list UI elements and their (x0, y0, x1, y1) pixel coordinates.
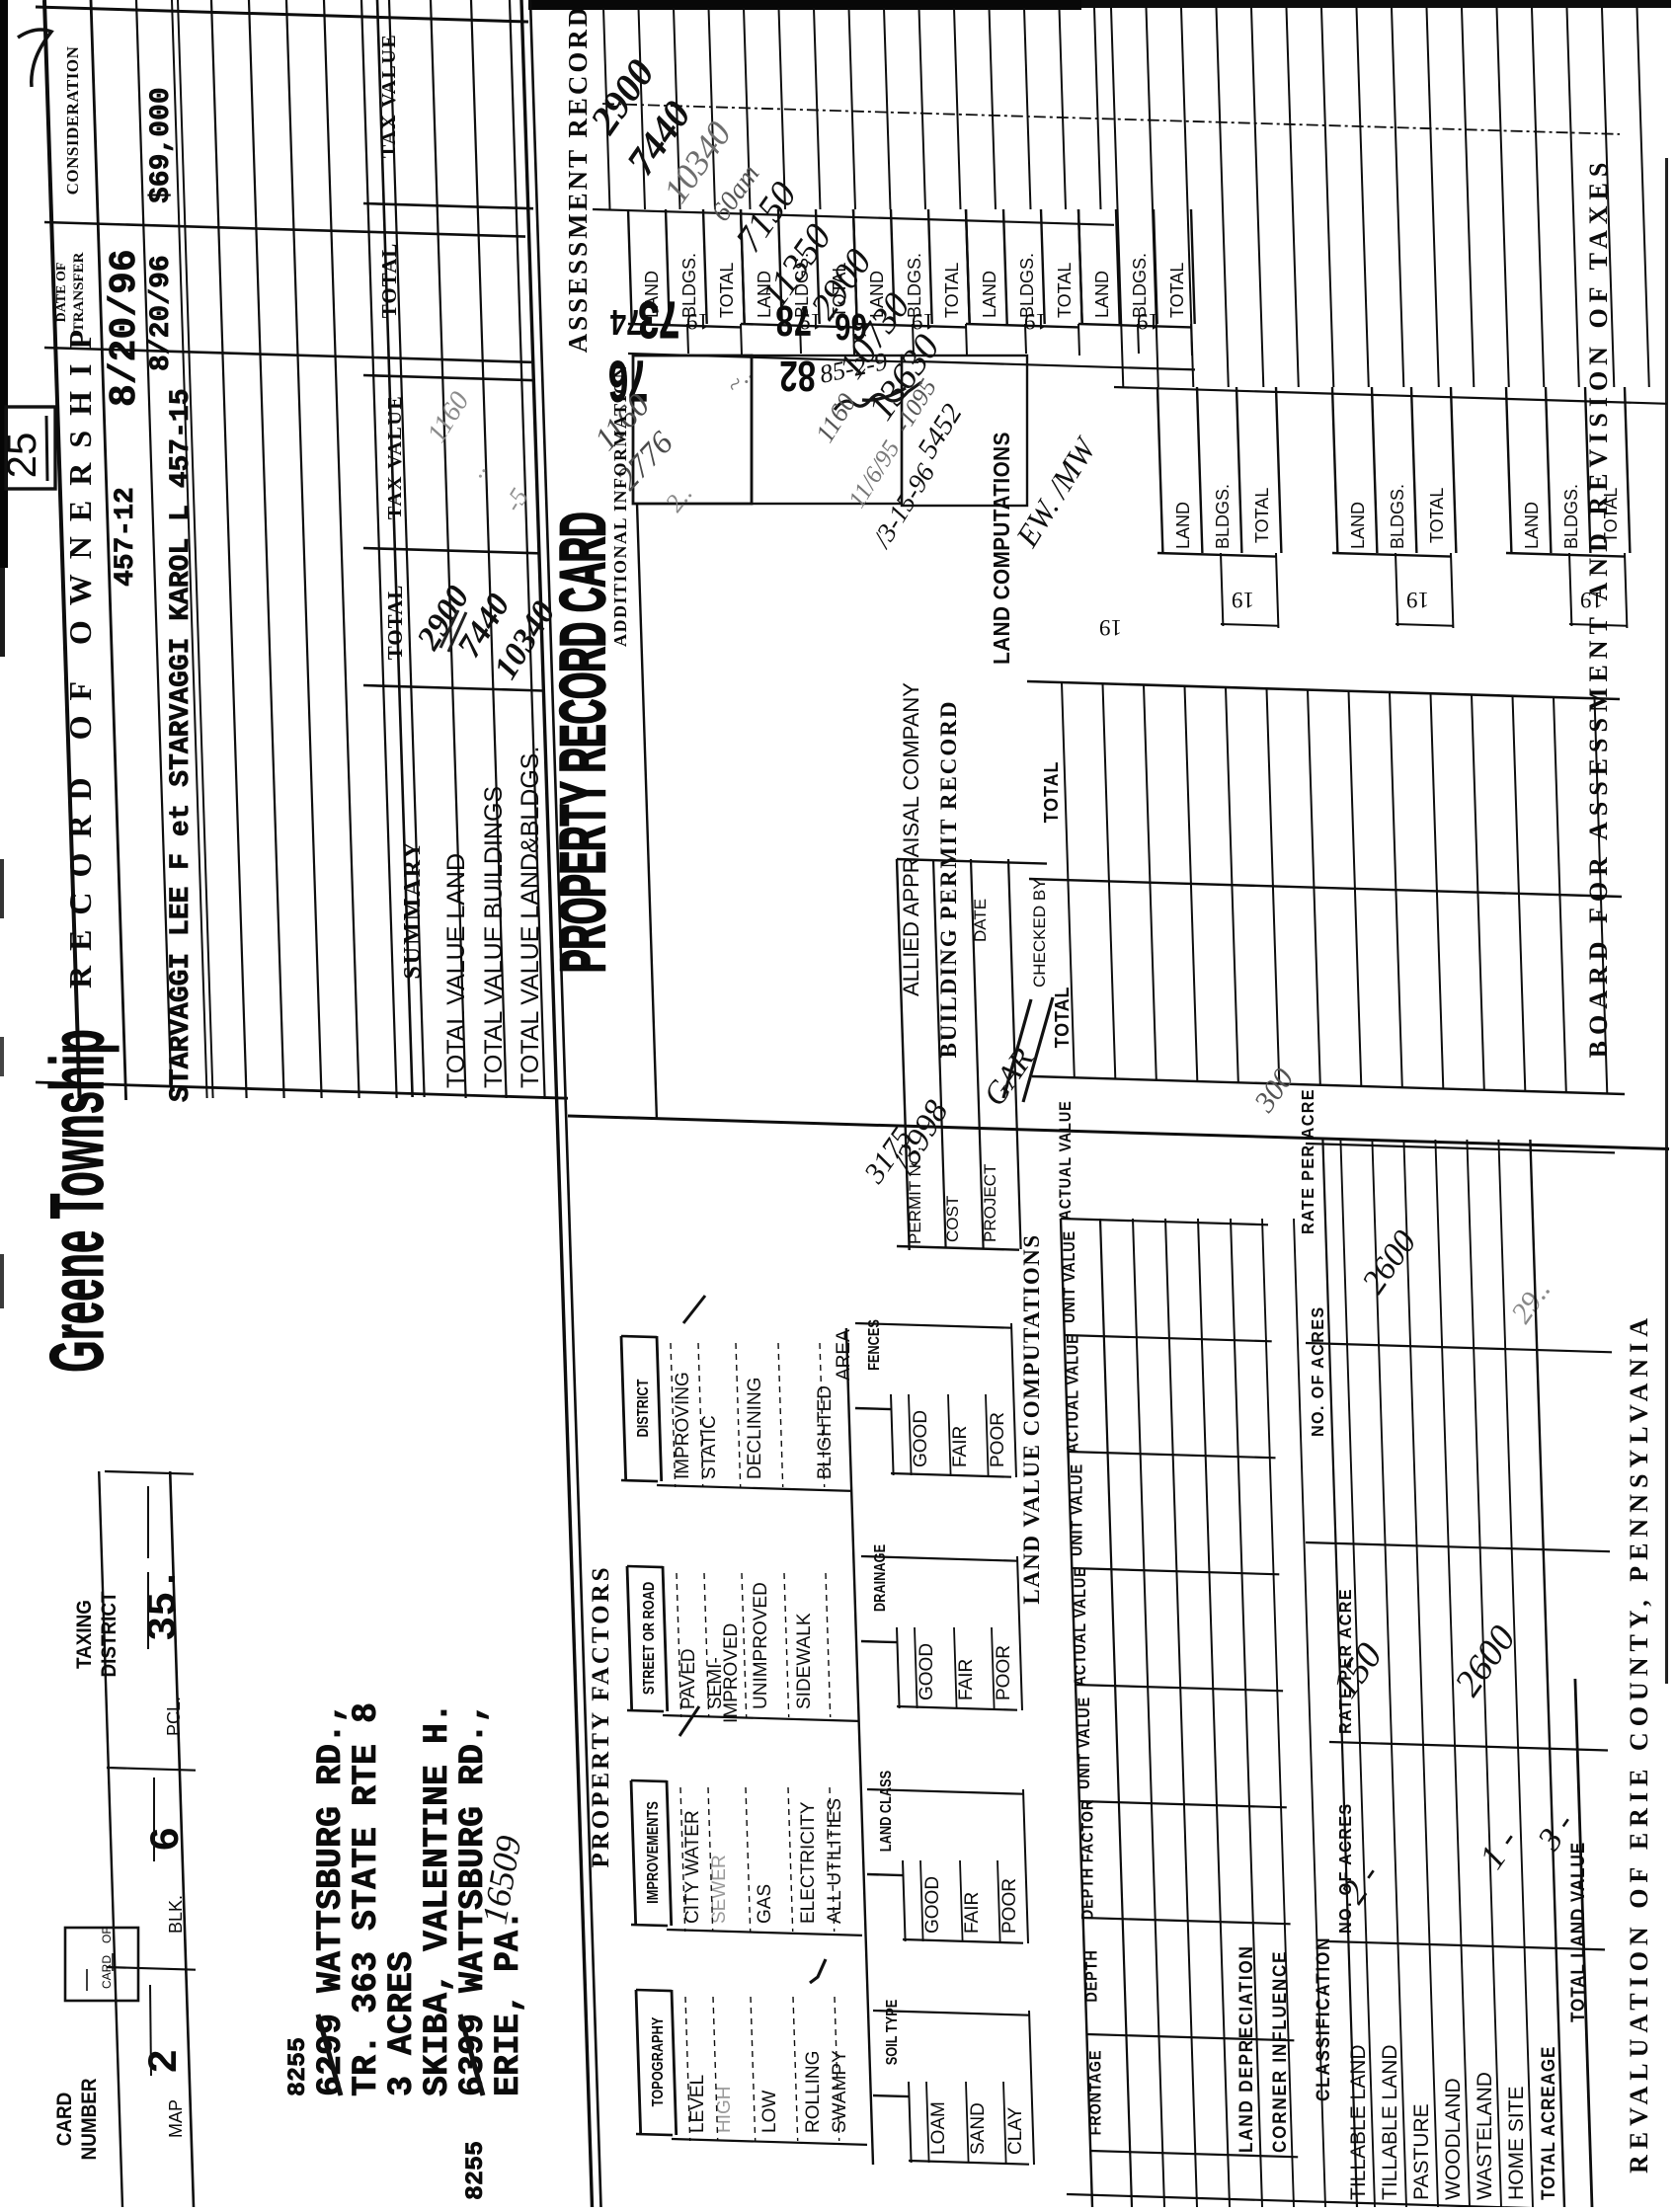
svg-text:6: 6 (143, 1827, 191, 1852)
svg-text:74: 74 (610, 302, 642, 343)
svg-text:UNIT VALUE: UNIT VALUE (1068, 1463, 1085, 1556)
svg-text:GOOD: GOOD (922, 1876, 943, 1934)
svg-text:OF: OF (100, 1927, 114, 1943)
svg-text:TOTAL: TOTAL (1252, 488, 1272, 543)
svg-text:BLDGS.: BLDGS. (1213, 484, 1233, 549)
svg-text:TOTAL: TOTAL (383, 585, 407, 661)
svg-text:Greene Township: Greene Township (35, 1029, 120, 1373)
svg-text:CHECKED BY: CHECKED BY (1030, 878, 1049, 987)
svg-text:TOPOGRAPHY: TOPOGRAPHY (650, 2016, 668, 2106)
svg-text:IMPROVEMENTS: IMPROVEMENTS (645, 1801, 663, 1904)
svg-text:DATE: DATE (971, 899, 990, 942)
svg-text:SAND: SAND (968, 2102, 989, 2155)
svg-text:TOTAL: TOTAL (942, 263, 962, 318)
svg-text:STARVAGGI LEE F et STARVAGGI K: STARVAGGI LEE F et STARVAGGI KAROL L 457… (166, 388, 197, 1102)
svg-text:BLDGS.: BLDGS. (1561, 484, 1581, 549)
svg-text:TOTAL: TOTAL (1167, 263, 1187, 318)
svg-text:GOOD: GOOD (911, 1410, 931, 1467)
svg-text:LAND CLASS: LAND CLASS (878, 1771, 896, 1853)
svg-text:CORNER INFLUENCE: CORNER INFLUENCE (1269, 1950, 1290, 2153)
svg-text:GAS: GAS (755, 1884, 775, 1924)
svg-text:19: 19 (686, 309, 709, 334)
svg-text:LOW: LOW (759, 2091, 780, 2133)
svg-text:UNIT VALUE: UNIT VALUE (1076, 1697, 1093, 1789)
svg-text:BOARD FOR ASSESSMENT AND REVIS: BOARD FOR ASSESSMENT AND REVISION OF TAX… (1584, 157, 1613, 1059)
svg-text:73: 73 (638, 291, 679, 350)
svg-text:BLDGS.: BLDGS. (1388, 484, 1407, 549)
svg-text:SUMMARY: SUMMARY (400, 839, 426, 979)
svg-text:ALLIED APPRAISAL COMPANY: ALLIED APPRAISAL COMPANY (899, 682, 923, 996)
svg-text:8255: 8255 (461, 2141, 490, 2200)
svg-text:TAXING: TAXING (73, 1600, 96, 1669)
svg-text:NO. OF ACRES: NO. OF ACRES (1308, 1305, 1327, 1437)
svg-text:BLDGS.: BLDGS. (679, 253, 699, 318)
svg-text:LAND: LAND (1522, 502, 1542, 549)
svg-text:CLAY: CLAY (1005, 2106, 1026, 2155)
svg-text:TILLABLE LAND: TILLABLE LAND (1379, 2044, 1401, 2200)
svg-text:LAND VALUE COMPUTATIONS: LAND VALUE COMPUTATIONS (1019, 1233, 1044, 1604)
svg-text:LOAM: LOAM (928, 2101, 949, 2155)
svg-text:ACTUAL VALUE: ACTUAL VALUE (1057, 1100, 1075, 1220)
svg-text:BUILDING PERMIT RECORD: BUILDING PERMIT RECORD (936, 699, 961, 1058)
svg-text:SWAMPY: SWAMPY (830, 2050, 850, 2133)
svg-text:WOODLAND: WOODLAND (1442, 2078, 1465, 2200)
svg-text:TAX VALUE: TAX VALUE (384, 395, 406, 519)
svg-text:NUMBER: NUMBER (78, 2078, 101, 2160)
svg-text:2: 2 (141, 2049, 189, 2074)
svg-text:ASSESSMENT RECORD: ASSESSMENT RECORD (563, 5, 593, 354)
svg-text:BLDGS.: BLDGS. (1017, 253, 1037, 318)
svg-text:TR. 363 STATE RTE 8: TR. 363 STATE RTE 8 (347, 1702, 386, 2096)
svg-text:FRONTAGE: FRONTAGE (1086, 2050, 1104, 2136)
svg-text:FAIR: FAIR (950, 1426, 971, 1467)
svg-text:19: 19 (1099, 615, 1122, 640)
svg-text:TOTAL: TOTAL (717, 263, 737, 318)
svg-text:DISTRICT: DISTRICT (98, 1591, 120, 1677)
svg-text:IMPROVED: IMPROVED (721, 1623, 742, 1723)
svg-text:CLASSIFICATION: CLASSIFICATION (1313, 1936, 1333, 2101)
svg-text:UNIMPROVED: UNIMPROVED (751, 1582, 771, 1709)
svg-text:TRANSFER: TRANSFER (71, 252, 87, 332)
svg-text:BLK.: BLK. (166, 1895, 186, 1934)
svg-text:AREA: AREA (834, 1329, 854, 1381)
svg-text:82: 82 (779, 352, 816, 400)
svg-text:ROLLING: ROLLING (803, 2051, 824, 2133)
svg-text:PASTURE: PASTURE (1410, 2103, 1433, 2200)
svg-text:RATE PER ACRE: RATE PER ACRE (1298, 1088, 1317, 1234)
svg-text:ALL UTILITIES: ALL UTILITIES (825, 1798, 845, 1924)
svg-text:CITY WATER: CITY WATER (682, 1810, 703, 1924)
svg-text:IMPROVING: IMPROVING (673, 1372, 693, 1479)
svg-text:GOOD: GOOD (917, 1643, 937, 1700)
svg-text:CARD: CARD (53, 2093, 76, 2147)
svg-text:8/20/96: 8/20/96 (104, 249, 146, 407)
svg-text:LAND DEPRECIATION: LAND DEPRECIATION (1236, 1944, 1256, 2153)
svg-text:REVALUATION OF ERIE COUNTY, PE: REVALUATION OF ERIE COUNTY, PENNSYLVANIA (1625, 1312, 1653, 2173)
svg-text:TILLABLE LAND: TILLABLE LAND (1347, 2044, 1370, 2200)
svg-text:POOR: POOR (999, 1878, 1020, 1934)
svg-text:LAND: LAND (980, 271, 999, 318)
svg-text:TAX VALUE: TAX VALUE (378, 34, 400, 158)
svg-text:STREET OR ROAD: STREET OR ROAD (641, 1582, 659, 1695)
svg-text:LAND: LAND (1348, 502, 1368, 549)
svg-text:25: 25 (0, 433, 44, 479)
svg-text:ADDITIONAL INFORMATION: ADDITIONAL INFORMATION (610, 364, 630, 647)
svg-text:POOR: POOR (988, 1412, 1008, 1467)
svg-text:HOME SITE: HOME SITE (1505, 2086, 1528, 2200)
svg-text:POOR: POOR (994, 1645, 1014, 1700)
svg-text:UNIT VALUE: UNIT VALUE (1061, 1230, 1078, 1323)
svg-text:PROJECT: PROJECT (981, 1164, 999, 1242)
svg-text:ELECTRICITY: ELECTRICITY (798, 1801, 819, 1924)
svg-text:DRAINAGE: DRAINAGE (872, 1544, 890, 1612)
svg-text:CARD: CARD (100, 1955, 114, 1989)
svg-text:SKIBA, VALENTINE H.: SKIBA, VALENTINE H. (418, 1702, 457, 2096)
svg-text:LEVEL: LEVEL (687, 2075, 708, 2133)
svg-text:ACTUAL VALUE: ACTUAL VALUE (1072, 1566, 1089, 1686)
svg-text:CONSIDERATION: CONSIDERATION (63, 45, 82, 195)
svg-text:FAIR: FAIR (962, 1892, 983, 1934)
svg-text:RECORD OF OWNERSHIP: RECORD OF OWNERSHIP (62, 315, 98, 988)
svg-text:TOTAL: TOTAL (1041, 761, 1063, 824)
svg-text:STATIC: STATIC (699, 1415, 720, 1479)
svg-text:3 ACRES: 3 ACRES (382, 1951, 422, 2096)
svg-text:6299 WATTSBURG RD.,: 6299 WATTSBURG RD., (311, 1702, 351, 2096)
svg-text:PROPERTY RECORD CARD: PROPERTY RECORD CARD (547, 512, 618, 973)
svg-text:TOTAL: TOTAL (1427, 488, 1447, 543)
svg-text:19: 19 (1024, 309, 1047, 334)
svg-text:LAND: LAND (1092, 271, 1112, 318)
svg-text:8255: 8255 (283, 2037, 312, 2096)
svg-text:TOTAL: TOTAL (377, 243, 401, 319)
svg-text:PCL.: PCL. (164, 1697, 184, 1736)
svg-text:TOTAL VALUE LAND: TOTAL VALUE LAND (442, 853, 470, 1088)
svg-text:COST: COST (943, 1196, 962, 1242)
svg-text:ERIE, PA.: ERIE, PA. (489, 1910, 528, 2096)
svg-text:TOTAL VALUE BUILDINGS: TOTAL VALUE BUILDINGS (480, 786, 508, 1088)
svg-text:FENCES: FENCES (866, 1319, 884, 1371)
svg-text:DATE OF: DATE OF (54, 263, 69, 323)
svg-text:19: 19 (1232, 588, 1254, 612)
svg-text:TOTAL: TOTAL (1052, 987, 1074, 1049)
svg-text:19: 19 (1137, 309, 1159, 334)
svg-text:DEPTH FACTOR: DEPTH FACTOR (1079, 1799, 1097, 1920)
svg-text:ACTUAL VALUE: ACTUAL VALUE (1065, 1333, 1082, 1453)
svg-text:WASTELAND: WASTELAND (1474, 2072, 1496, 2200)
svg-text:DISTRICT: DISTRICT (635, 1379, 653, 1437)
svg-text:LAND COMPUTATIONS: LAND COMPUTATIONS (989, 432, 1014, 665)
svg-text:SOIL TYPE: SOIL TYPE (884, 1999, 902, 2065)
svg-text:TOTAL LAND VALUE: TOTAL LAND VALUE (1567, 1842, 1588, 2022)
svg-text:PAVED: PAVED (678, 1648, 699, 1709)
svg-text:FAIR: FAIR (956, 1659, 977, 1700)
svg-text:DECLINING: DECLINING (745, 1378, 765, 1479)
svg-text:8/20/96: 8/20/96 (146, 255, 177, 371)
svg-text:SEWER: SEWER (709, 1855, 730, 1924)
svg-text:BLIGHTED: BLIGHTED (815, 1385, 836, 1479)
svg-text:19: 19 (1406, 588, 1429, 612)
svg-text:DEPTH: DEPTH (1082, 1949, 1100, 2002)
svg-text:SIDEWALK: SIDEWALK (794, 1613, 815, 1709)
svg-text:LAND: LAND (1173, 502, 1193, 549)
svg-text:PROPERTY FACTORS: PROPERTY FACTORS (588, 1564, 614, 1867)
svg-text:$69,000: $69,000 (146, 87, 177, 203)
svg-text:MAP: MAP (166, 2099, 186, 2138)
svg-text:BLDGS.: BLDGS. (1130, 253, 1150, 318)
svg-text:457-12: 457-12 (111, 487, 141, 587)
svg-text:TOTAL VALUE LAND&BLDGS.: TOTAL VALUE LAND&BLDGS. (517, 747, 544, 1088)
svg-text:TOTAL: TOTAL (1055, 263, 1075, 318)
svg-text:TOTAL ACREAGE: TOTAL ACREAGE (1538, 2046, 1558, 2200)
